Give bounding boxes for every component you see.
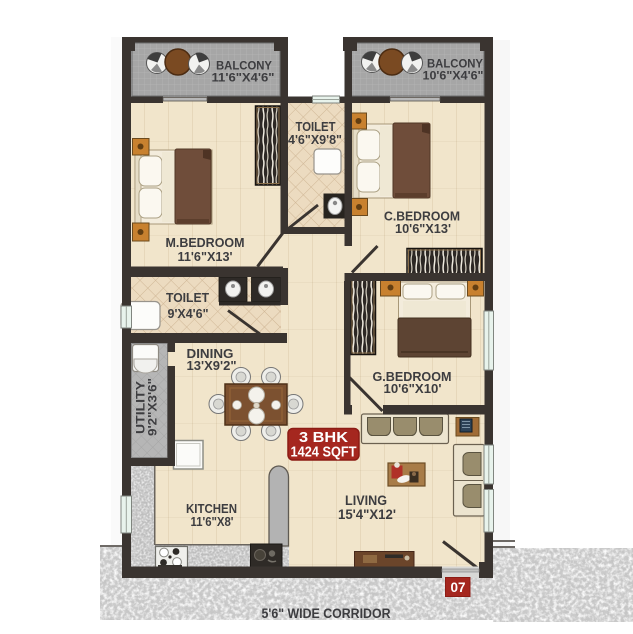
svg-text:1424 SQFT: 1424 SQFT xyxy=(291,445,357,461)
svg-text:13'X9'2": 13'X9'2" xyxy=(187,358,237,373)
svg-text:LIVING: LIVING xyxy=(345,493,387,508)
svg-text:11'6"X4'6": 11'6"X4'6" xyxy=(212,71,275,85)
svg-text:10'6"X10': 10'6"X10' xyxy=(384,381,442,396)
svg-text:10'6"X4'6": 10'6"X4'6" xyxy=(423,69,484,83)
svg-text:15'4"X12': 15'4"X12' xyxy=(338,507,396,522)
svg-text:9'X4'6": 9'X4'6" xyxy=(168,307,209,321)
svg-text:KITCHEN: KITCHEN xyxy=(186,502,237,516)
svg-text:11'6"X13': 11'6"X13' xyxy=(178,249,233,264)
svg-text:11'6"X8': 11'6"X8' xyxy=(191,515,234,529)
svg-text:UTILITY: UTILITY xyxy=(136,381,148,434)
svg-text:4'6"X9'8": 4'6"X9'8" xyxy=(288,133,342,147)
svg-text:10'6"X13': 10'6"X13' xyxy=(395,221,451,236)
svg-text:07: 07 xyxy=(450,580,465,595)
svg-text:5'6" WIDE CORRIDOR: 5'6" WIDE CORRIDOR xyxy=(262,606,391,621)
svg-text:M.BEDROOM: M.BEDROOM xyxy=(166,235,245,250)
svg-text:TOILET: TOILET xyxy=(166,291,209,305)
svg-text:TOILET: TOILET xyxy=(296,120,336,134)
svg-text:9'2"X3'6": 9'2"X3'6" xyxy=(148,378,160,436)
